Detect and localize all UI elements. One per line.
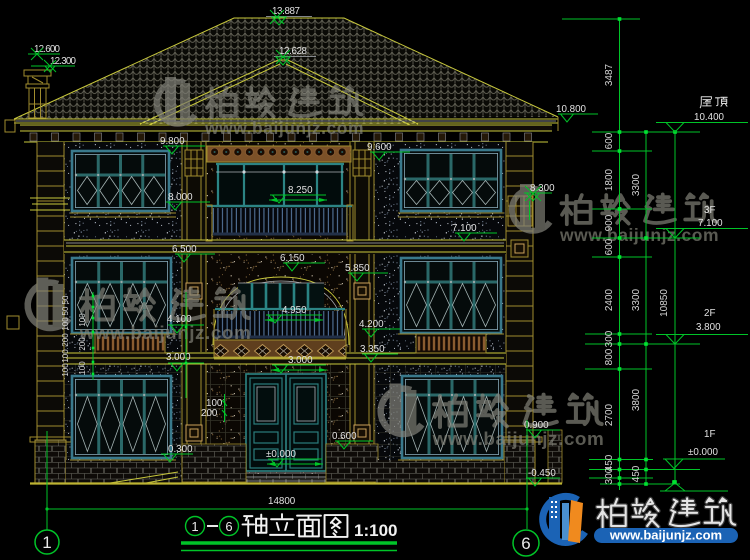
svg-text:10.800: 10.800 [556, 104, 587, 115]
svg-text:9.800: 9.800 [160, 136, 185, 147]
svg-text:8.000: 8.000 [168, 192, 193, 203]
svg-text:2700: 2700 [604, 403, 615, 426]
svg-text:3300: 3300 [631, 173, 642, 196]
svg-text:3.350: 3.350 [360, 344, 385, 355]
svg-text:300: 300 [604, 467, 615, 484]
svg-text:100: 100 [61, 349, 70, 363]
svg-text:www.baijunjz.com: www.baijunjz.com [79, 323, 252, 344]
svg-text:www.baijunjz.com: www.baijunjz.com [432, 429, 605, 450]
svg-text:1:100: 1:100 [354, 521, 397, 540]
svg-text:1: 1 [42, 533, 51, 552]
svg-text:12.628: 12.628 [279, 46, 308, 57]
svg-text:-0.450: -0.450 [528, 468, 556, 479]
svg-text:800: 800 [604, 348, 615, 365]
svg-text:www.baijunjz.com: www.baijunjz.com [609, 528, 722, 543]
svg-text:900: 900 [604, 214, 615, 231]
svg-text:14800: 14800 [268, 496, 296, 507]
svg-text:450: 450 [631, 465, 642, 482]
svg-text:4.100: 4.100 [167, 314, 192, 325]
svg-text:200: 200 [201, 408, 218, 419]
svg-text:6: 6 [521, 534, 530, 553]
svg-text:4.950: 4.950 [282, 305, 307, 316]
svg-text:3300: 3300 [631, 288, 642, 311]
svg-text:3.800: 3.800 [696, 322, 721, 333]
svg-text:100: 100 [78, 361, 87, 375]
svg-text:2F: 2F [704, 308, 715, 319]
svg-text:7.100: 7.100 [452, 223, 477, 234]
svg-text:8.250: 8.250 [288, 185, 313, 196]
svg-text:3487: 3487 [604, 63, 615, 86]
svg-text:3.000: 3.000 [166, 352, 191, 363]
svg-text:1F: 1F [704, 429, 715, 440]
svg-text:9.600: 9.600 [367, 142, 392, 153]
svg-text:600: 600 [604, 238, 615, 255]
svg-text:www.baijunjz.com: www.baijunjz.com [204, 118, 364, 138]
svg-text:600: 600 [604, 132, 615, 149]
svg-text:1800: 1800 [604, 168, 615, 191]
svg-text:3F: 3F [704, 205, 715, 216]
svg-text:2400: 2400 [604, 288, 615, 311]
svg-text:10850: 10850 [659, 289, 670, 317]
svg-text:±0.000: ±0.000 [688, 447, 718, 458]
svg-text:50: 50 [61, 306, 70, 315]
svg-text:100: 100 [61, 317, 70, 331]
svg-text:7.100: 7.100 [698, 218, 723, 229]
svg-text:3800: 3800 [631, 388, 642, 411]
svg-text:1: 1 [191, 519, 198, 534]
svg-text:3.000: 3.000 [288, 355, 313, 366]
svg-text:6: 6 [225, 519, 232, 534]
svg-text:10.400: 10.400 [694, 112, 725, 123]
svg-text:200: 200 [78, 337, 87, 351]
svg-text:6.150: 6.150 [280, 253, 305, 264]
svg-text:100: 100 [61, 363, 70, 377]
svg-text:0.300: 0.300 [168, 444, 193, 455]
svg-text:4.200: 4.200 [359, 319, 384, 330]
svg-text:200: 200 [61, 333, 70, 347]
svg-text:0.900: 0.900 [524, 420, 549, 431]
svg-text:50: 50 [61, 295, 70, 304]
svg-text:13.887: 13.887 [272, 6, 300, 17]
svg-text:100: 100 [78, 313, 87, 327]
svg-text:300: 300 [604, 330, 615, 347]
svg-text:0.600: 0.600 [332, 431, 357, 442]
svg-text:6.500: 6.500 [172, 244, 197, 255]
svg-text:5.850: 5.850 [345, 263, 370, 274]
svg-text:±0.000: ±0.000 [266, 449, 296, 460]
